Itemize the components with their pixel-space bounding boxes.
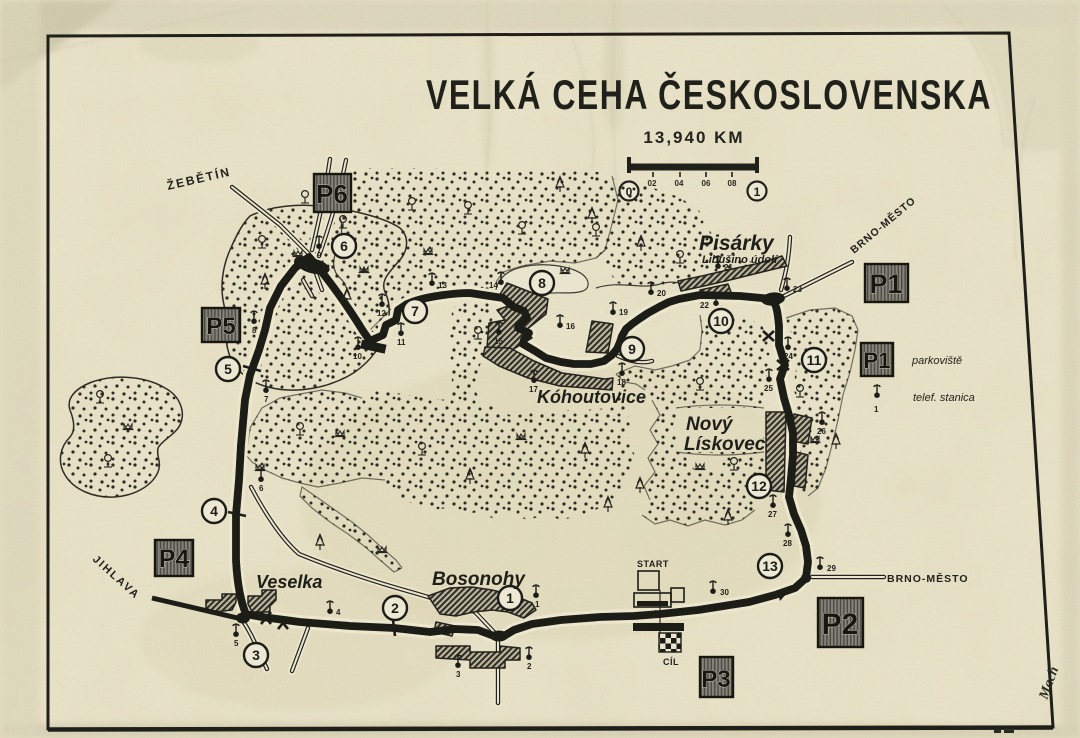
svg-text:18: 18 bbox=[617, 378, 626, 387]
svg-text:15: 15 bbox=[494, 337, 503, 346]
svg-text:1: 1 bbox=[874, 405, 879, 414]
svg-text:BRNO-MĚSTO: BRNO-MĚSTO bbox=[887, 572, 969, 585]
svg-text:13: 13 bbox=[762, 558, 778, 574]
svg-text:08: 08 bbox=[728, 179, 737, 188]
svg-text:1: 1 bbox=[535, 600, 540, 609]
svg-text:START: START bbox=[637, 559, 669, 569]
svg-text:P1: P1 bbox=[864, 348, 891, 373]
svg-text:8: 8 bbox=[252, 326, 257, 335]
svg-text:Veselka: Veselka bbox=[256, 572, 322, 592]
svg-text:Lískovec: Lískovec bbox=[684, 434, 766, 455]
svg-text:4: 4 bbox=[336, 608, 341, 617]
svg-text:2: 2 bbox=[527, 662, 532, 671]
svg-text:12: 12 bbox=[377, 309, 386, 318]
svg-text:3: 3 bbox=[456, 670, 461, 679]
svg-text:9: 9 bbox=[628, 341, 636, 357]
svg-text:28: 28 bbox=[783, 539, 792, 548]
svg-text:11: 11 bbox=[807, 352, 822, 368]
svg-text:7: 7 bbox=[411, 303, 419, 319]
svg-text:13,940 KM: 13,940 KM bbox=[643, 128, 744, 147]
svg-text:6: 6 bbox=[340, 238, 348, 254]
svg-text:1: 1 bbox=[506, 590, 514, 606]
svg-text:VELKÁ CEHA ČESKOSLOVENSKA: VELKÁ CEHA ČESKOSLOVENSKA bbox=[426, 70, 992, 118]
svg-text:CÍL: CÍL bbox=[663, 657, 679, 667]
svg-text:parkoviště: parkoviště bbox=[911, 355, 962, 367]
svg-text:P2: P2 bbox=[822, 608, 859, 641]
svg-text:12: 12 bbox=[751, 478, 767, 494]
svg-text:13: 13 bbox=[438, 281, 447, 290]
svg-text:24: 24 bbox=[784, 352, 793, 361]
svg-text:19: 19 bbox=[619, 308, 628, 317]
svg-text:1: 1 bbox=[754, 185, 761, 199]
svg-text:Kóhoutovice: Kóhoutovice bbox=[537, 387, 646, 407]
svg-text:14: 14 bbox=[489, 281, 498, 290]
svg-text:11: 11 bbox=[397, 338, 406, 347]
svg-text:22: 22 bbox=[700, 301, 709, 310]
svg-text:20: 20 bbox=[657, 289, 666, 298]
svg-text:P4: P4 bbox=[159, 545, 190, 573]
svg-text:P6: P6 bbox=[316, 179, 348, 209]
svg-text:2: 2 bbox=[391, 600, 399, 616]
svg-text:5: 5 bbox=[224, 361, 232, 377]
svg-text:Libušino údolí: Libušino údolí bbox=[702, 254, 779, 266]
svg-text:P1: P1 bbox=[869, 269, 902, 299]
svg-text:Pisárky: Pisárky bbox=[699, 232, 775, 255]
svg-text:04: 04 bbox=[675, 179, 684, 188]
svg-text:3: 3 bbox=[252, 647, 260, 663]
svg-text:Bosonohy: Bosonohy bbox=[432, 569, 526, 590]
svg-text:29: 29 bbox=[827, 564, 836, 573]
svg-text:06: 06 bbox=[702, 179, 711, 188]
svg-text:8: 8 bbox=[538, 275, 546, 291]
svg-text:5: 5 bbox=[234, 639, 239, 648]
svg-text:7: 7 bbox=[264, 395, 269, 404]
svg-text:Nový: Nový bbox=[686, 414, 734, 435]
svg-text:4: 4 bbox=[210, 503, 218, 519]
svg-text:25: 25 bbox=[764, 384, 773, 393]
svg-text:9: 9 bbox=[317, 251, 322, 260]
svg-text:23: 23 bbox=[793, 285, 802, 294]
svg-text:30: 30 bbox=[720, 588, 729, 597]
svg-text:P3: P3 bbox=[701, 666, 730, 693]
svg-text:26: 26 bbox=[817, 427, 826, 436]
svg-text:10: 10 bbox=[713, 313, 729, 329]
svg-text:10: 10 bbox=[353, 352, 362, 361]
svg-text:6: 6 bbox=[259, 484, 264, 493]
svg-text:16: 16 bbox=[566, 322, 575, 331]
svg-text:P5: P5 bbox=[206, 313, 235, 340]
svg-text:27: 27 bbox=[768, 510, 777, 519]
svg-text:telef. stanica: telef. stanica bbox=[913, 392, 975, 404]
